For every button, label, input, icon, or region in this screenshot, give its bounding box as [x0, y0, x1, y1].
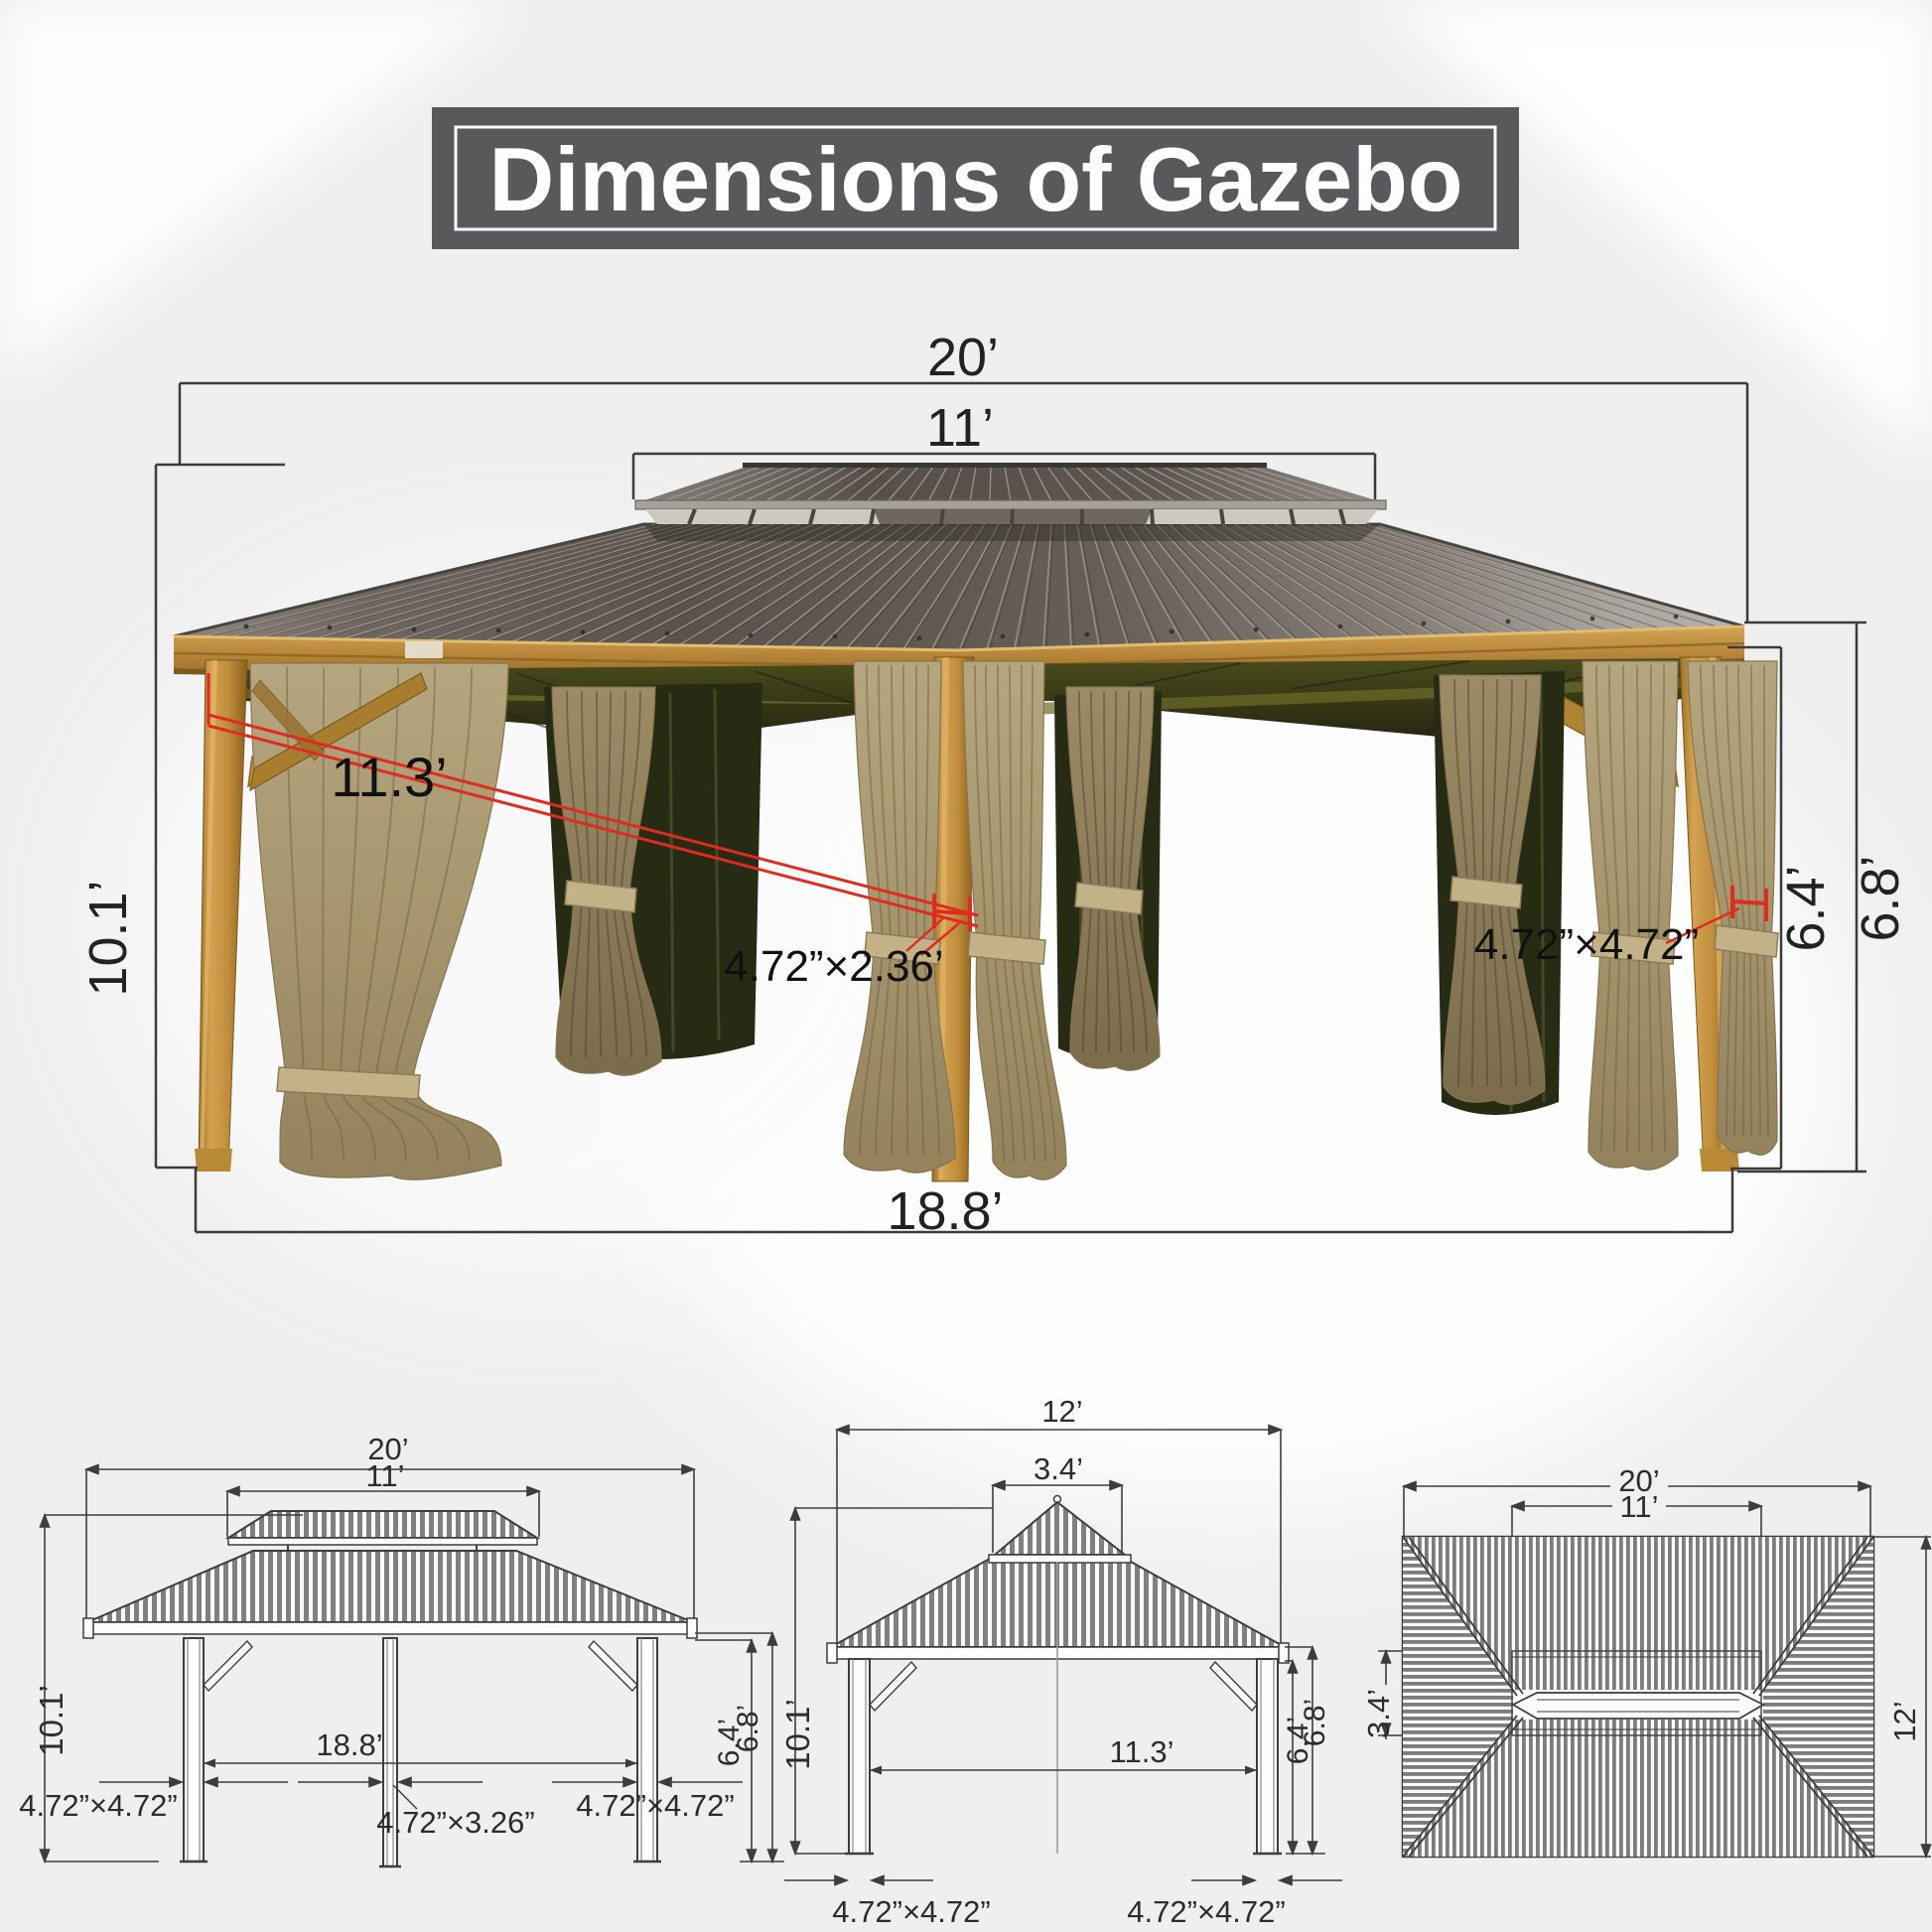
- svg-text:10.1’: 10.1’: [779, 1699, 816, 1770]
- svg-text:18.8’: 18.8’: [316, 1727, 382, 1762]
- svg-text:4.72”×3.26”: 4.72”×3.26”: [376, 1805, 534, 1840]
- svg-text:4.72”×4.72”: 4.72”×4.72”: [19, 1788, 177, 1823]
- svg-text:12’: 12’: [1041, 1394, 1082, 1429]
- svg-text:4.72”×4.72”: 4.72”×4.72”: [832, 1894, 990, 1929]
- svg-text:3.4’: 3.4’: [1034, 1451, 1083, 1486]
- svg-text:6.8’: 6.8’: [732, 1705, 764, 1752]
- svg-text:4.72”×4.72”: 4.72”×4.72”: [1474, 920, 1699, 969]
- svg-text:6.4’: 6.4’: [1776, 865, 1836, 951]
- svg-text:4.72”×2.36’: 4.72”×2.36’: [724, 942, 943, 991]
- svg-text:11’: 11’: [926, 398, 994, 458]
- svg-text:4.72”×4.72”: 4.72”×4.72”: [576, 1788, 734, 1823]
- svg-text:10.1’: 10.1’: [33, 1685, 69, 1756]
- svg-text:6.8’: 6.8’: [1299, 1699, 1331, 1746]
- svg-text:11’: 11’: [1619, 1489, 1658, 1524]
- svg-text:12’: 12’: [1887, 1701, 1922, 1741]
- svg-text:20’: 20’: [927, 328, 999, 387]
- svg-text:11.3’: 11.3’: [1110, 1734, 1174, 1769]
- svg-text:3.4’: 3.4’: [1361, 1689, 1396, 1738]
- svg-text:18.8’: 18.8’: [887, 1181, 1003, 1241]
- svg-text:11’: 11’: [365, 1458, 404, 1493]
- svg-text:6.8’: 6.8’: [1851, 855, 1910, 941]
- svg-text:Dimensions of Gazebo: Dimensions of Gazebo: [489, 130, 1463, 230]
- svg-text:4.72”×4.72”: 4.72”×4.72”: [1127, 1894, 1285, 1929]
- svg-text:10.1’: 10.1’: [78, 880, 138, 996]
- svg-text:11.3’: 11.3’: [331, 746, 447, 808]
